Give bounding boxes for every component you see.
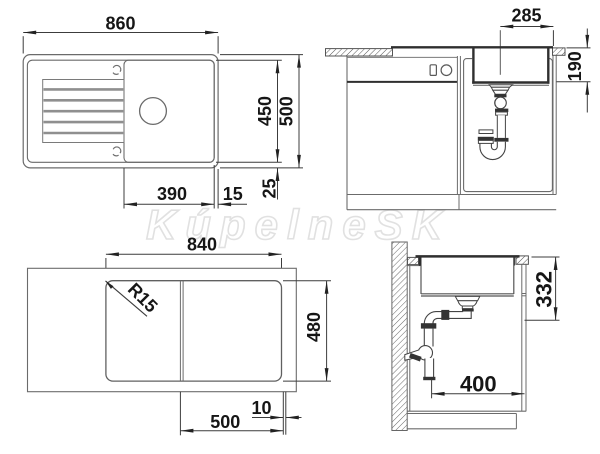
svg-text:15: 15 xyxy=(223,184,243,204)
svg-text:10: 10 xyxy=(251,398,271,418)
svg-text:400: 400 xyxy=(460,371,497,396)
svg-text:450: 450 xyxy=(255,96,275,126)
svg-text:500: 500 xyxy=(277,96,297,126)
svg-text:500: 500 xyxy=(210,412,240,432)
svg-text:390: 390 xyxy=(157,184,187,204)
svg-text:285: 285 xyxy=(511,5,541,25)
svg-text:480: 480 xyxy=(304,312,324,342)
svg-text:332: 332 xyxy=(532,271,557,308)
svg-text:25: 25 xyxy=(260,178,280,198)
svg-text:840: 840 xyxy=(187,234,217,254)
svg-text:190: 190 xyxy=(565,51,585,81)
svg-text:860: 860 xyxy=(105,13,135,33)
